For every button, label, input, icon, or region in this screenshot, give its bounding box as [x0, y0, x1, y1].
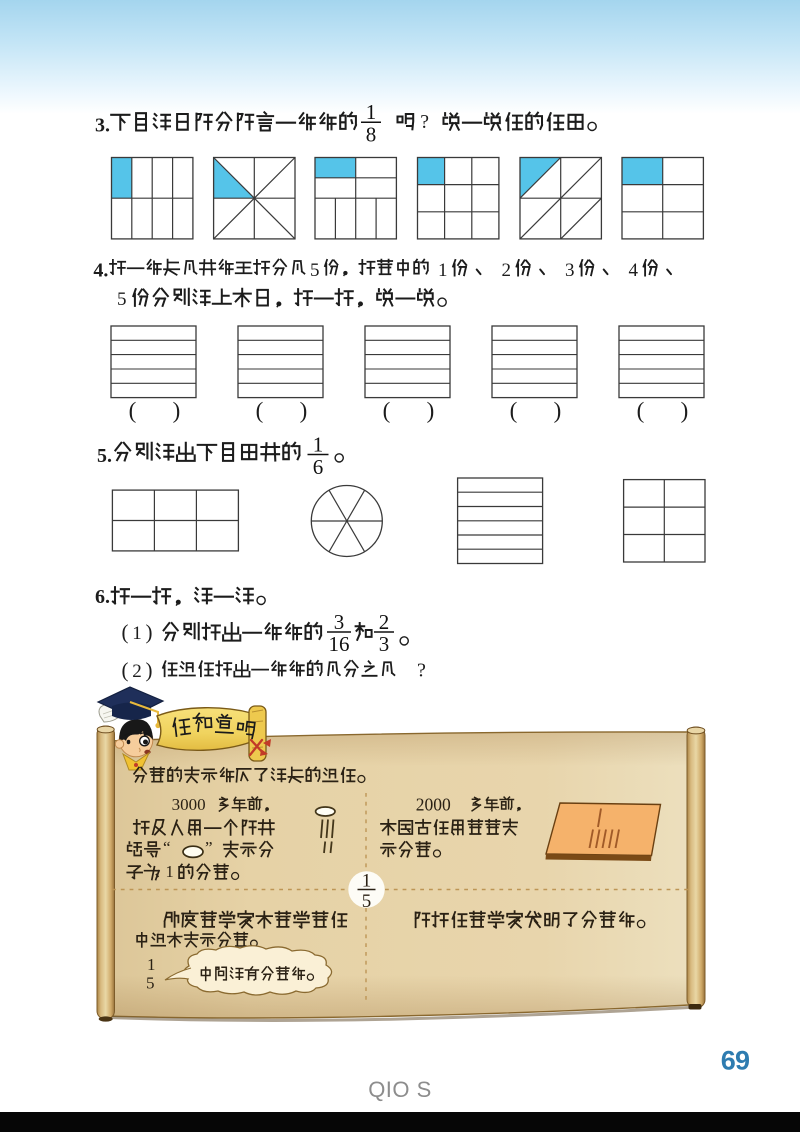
svg-text:“: “: [163, 838, 171, 857]
svg-text:1: 1: [166, 862, 174, 881]
svg-text:): ): [146, 658, 153, 682]
svg-text:): ): [146, 620, 153, 644]
svg-text:2: 2: [132, 661, 142, 682]
svg-text:8: 8: [366, 123, 377, 147]
svg-text:2000: 2000: [416, 795, 451, 815]
svg-text:1: 1: [132, 623, 142, 644]
svg-text:1: 1: [313, 432, 324, 456]
svg-text:3.: 3.: [95, 115, 110, 137]
svg-text:?: ?: [420, 111, 429, 133]
svg-text:): ): [173, 398, 181, 423]
svg-text:): ): [681, 398, 689, 423]
svg-text:): ): [427, 398, 435, 423]
svg-text:5: 5: [146, 974, 155, 993]
svg-text:4: 4: [629, 260, 639, 281]
svg-text:(: (: [122, 620, 129, 644]
svg-text:): ): [300, 398, 308, 423]
svg-text:(: (: [129, 398, 137, 423]
svg-text:(: (: [383, 398, 391, 423]
svg-text:1: 1: [366, 100, 377, 124]
svg-text:4.: 4.: [93, 260, 108, 282]
svg-text:1: 1: [362, 870, 372, 891]
svg-text:(: (: [256, 398, 264, 423]
svg-text:3000: 3000: [172, 795, 206, 814]
svg-text:3: 3: [379, 632, 390, 656]
svg-text:(: (: [122, 658, 129, 682]
svg-text:6: 6: [313, 455, 324, 479]
svg-text:69: 69: [721, 1046, 750, 1076]
svg-text:”: ”: [205, 838, 213, 857]
svg-text:QIO S: QIO S: [368, 1077, 432, 1102]
svg-text:5.: 5.: [97, 445, 112, 467]
svg-text:6.: 6.: [95, 586, 110, 608]
svg-text:): ): [554, 398, 562, 423]
svg-text:5: 5: [117, 289, 127, 310]
svg-text:1: 1: [438, 260, 448, 281]
svg-text:(: (: [510, 398, 518, 423]
svg-text:(: (: [637, 398, 645, 423]
svg-text:5: 5: [310, 260, 320, 281]
svg-text:2: 2: [502, 260, 512, 281]
svg-text:?: ?: [417, 660, 426, 682]
svg-text:1: 1: [147, 955, 156, 974]
svg-text:2: 2: [379, 610, 390, 634]
svg-text:3: 3: [565, 260, 575, 281]
svg-text:16: 16: [329, 632, 350, 656]
svg-text:5: 5: [362, 891, 372, 912]
svg-text:3: 3: [334, 610, 345, 634]
